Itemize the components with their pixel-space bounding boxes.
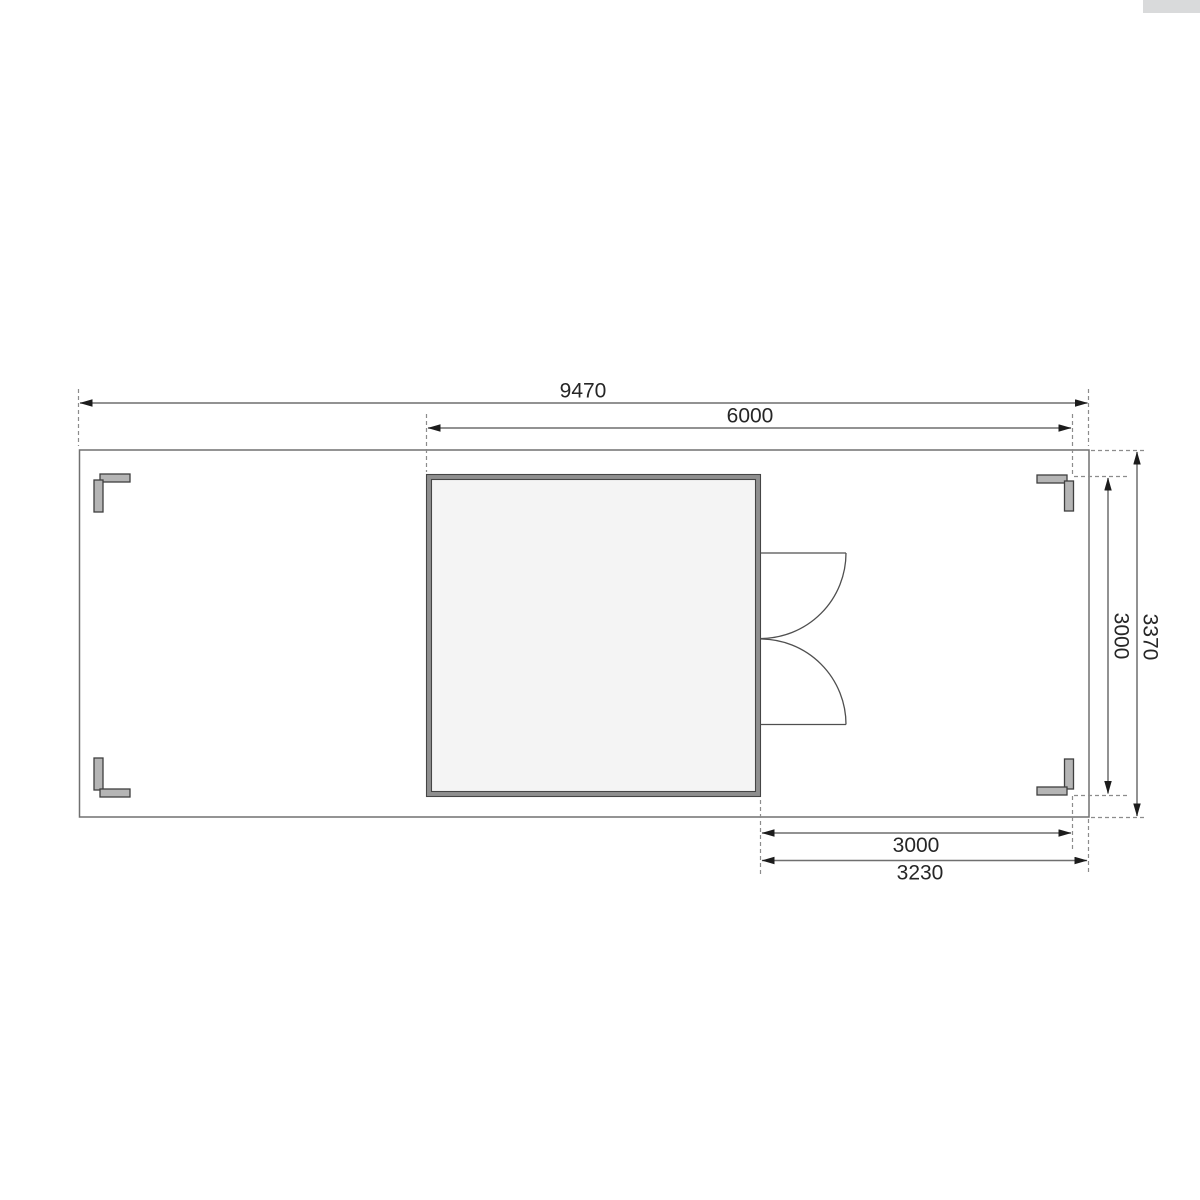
post-bar-vertical [1065, 759, 1074, 789]
door-swing-bottom [761, 639, 847, 725]
dimension-label-span-width: 6000 [727, 405, 774, 428]
dimension-label-side-depth-inner: 3000 [1110, 613, 1133, 660]
post-bar-horizontal [100, 474, 130, 482]
post-bar-horizontal [1037, 787, 1067, 795]
door-swing-top [761, 553, 847, 639]
dimension-total-width: 9470 [80, 380, 1088, 404]
cabin-floor [428, 476, 759, 795]
double-door [761, 553, 847, 725]
post-bar-vertical [94, 758, 103, 790]
dimension-side-depth-total: 3370 [1137, 452, 1162, 816]
dimension-side-depth-inner: 3000 [1108, 478, 1133, 794]
post-bottom-right [1037, 759, 1074, 795]
dimension-label-side-depth-total: 3370 [1139, 614, 1162, 661]
floor-plan-drawing: 9470 6000 3000 3370 3000 3230 [0, 0, 1200, 1200]
dimension-bottom-span-inner: 3000 [762, 833, 1071, 857]
post-bar-horizontal [100, 789, 130, 797]
post-bar-horizontal [1037, 475, 1067, 483]
post-bottom-left [94, 758, 130, 797]
floor-plan-page: 9470 6000 3000 3370 3000 3230 [0, 0, 1200, 1200]
dimension-span-width: 6000 [428, 405, 1071, 429]
cabin [427, 475, 761, 797]
dimension-label-bottom-span-total: 3230 [897, 862, 944, 885]
post-bar-vertical [1065, 481, 1074, 511]
dimension-label-bottom-span-inner: 3000 [893, 834, 940, 857]
dimension-bottom-span-total: 3230 [762, 861, 1087, 885]
post-top-right [1037, 475, 1074, 511]
post-bar-vertical [94, 480, 103, 512]
post-top-left [94, 474, 130, 512]
dimension-label-total-width: 9470 [560, 380, 607, 403]
scrollbar-fragment [1143, 0, 1200, 13]
